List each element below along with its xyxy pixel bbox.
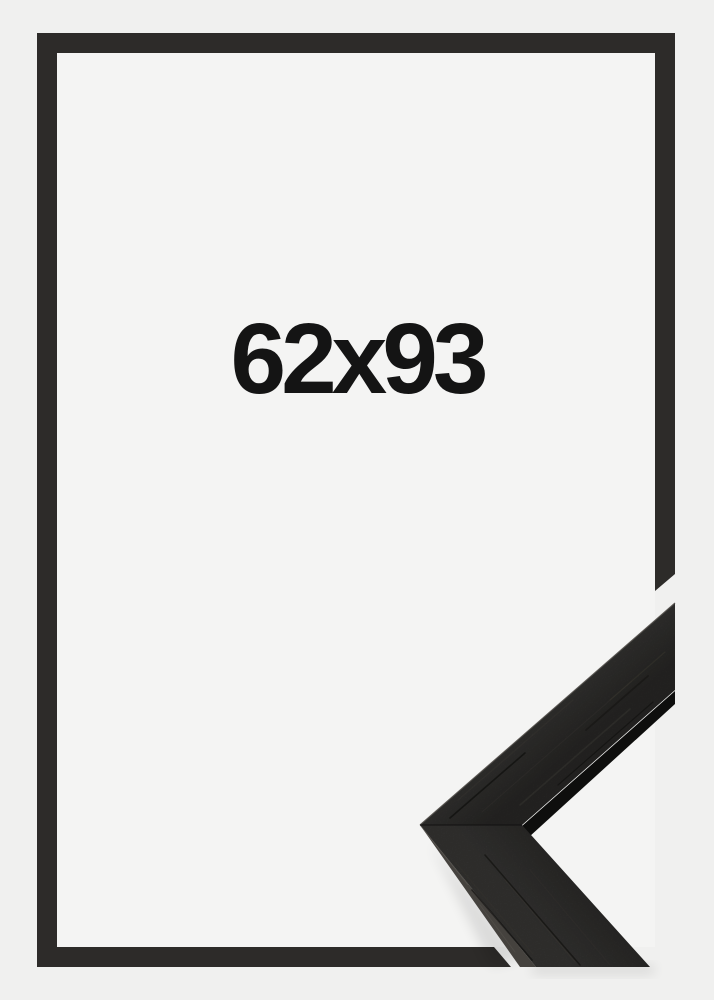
frame-product-photo: 62x93 [0,0,714,1000]
frame-border-top [37,33,675,53]
frame-border-bottom [37,947,511,967]
frame-border-right [655,53,675,591]
frame-interior [57,53,655,947]
frame-border-left [37,53,57,967]
frame-product-illustration: 62x93 [0,0,714,1000]
size-label: 62x93 [230,303,484,415]
shadow-bottom [532,966,654,973]
